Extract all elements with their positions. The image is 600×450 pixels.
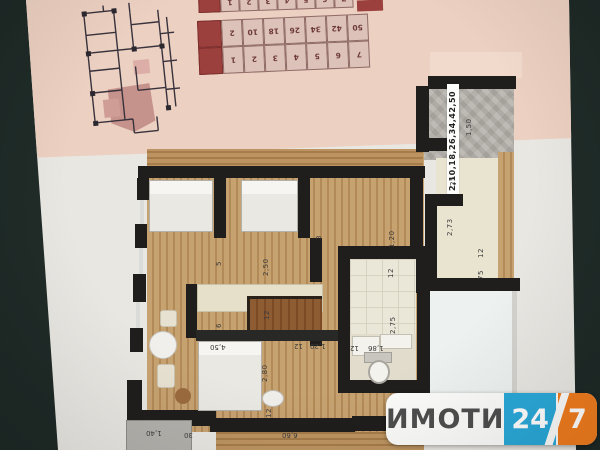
toilet-bowl (368, 360, 390, 384)
wall-segment (338, 259, 350, 383)
chair (160, 310, 177, 327)
wall-segment (338, 246, 428, 259)
floor-plan-photo: 1 2 3 4 5 6 7 2 10 18 26 34 42 50 (0, 0, 600, 450)
wall-segment (137, 178, 149, 200)
cell-value: 2 (229, 28, 235, 37)
wall-segment (138, 166, 425, 178)
dimension-label: 12 (478, 242, 485, 258)
table-corner-cell (357, 0, 383, 11)
table-cell: 10 (242, 18, 264, 46)
cell-value: 2 (246, 0, 252, 6)
dimension-label: 12 (350, 344, 359, 351)
dimension-label: 6,60 (282, 431, 298, 438)
wall-segment (428, 76, 516, 89)
window (140, 200, 144, 224)
cell-value: 50 (353, 23, 364, 32)
cell-value: 6 (335, 51, 341, 60)
dimension-label: 30 (184, 431, 193, 438)
cell-value: 34 (311, 25, 322, 34)
dimension-label: 1,86 (368, 344, 384, 351)
table-cell: 26 (284, 16, 306, 44)
round-table (149, 331, 177, 359)
wall-segment (214, 166, 226, 238)
wall-segment (425, 194, 463, 206)
dimension-label: 4,50 (210, 343, 226, 350)
bed (149, 180, 213, 232)
dimension-label: 2,73 (447, 196, 454, 236)
cell-value: 7 (356, 50, 362, 59)
table-cell: 18 (263, 17, 285, 45)
dimension-label: 1,20 (310, 342, 326, 349)
dimension-label: 12 (388, 262, 395, 278)
cell-value: 5 (314, 52, 320, 61)
wall-segment (133, 274, 146, 302)
room-number: 5 (216, 252, 223, 266)
table-cell: 42 (326, 14, 348, 42)
building-overview-inset (69, 0, 211, 148)
dimension-label: 2,75 (390, 300, 397, 334)
pink-light-patch (430, 52, 522, 78)
table-cell: 3 (264, 44, 286, 72)
dimension-label: 1,40 (146, 429, 162, 436)
cell-value: 2 (251, 54, 257, 63)
wall-segment (135, 224, 147, 248)
cell-value: 4 (293, 53, 299, 62)
dimension-label: 1,50 (466, 96, 473, 136)
dimension-label: 1,20 (389, 218, 396, 248)
table-cell: 5 (306, 42, 328, 70)
floors-table: 2 10 18 26 34 42 50 1 2 3 4 5 6 7 (197, 14, 370, 75)
table-header-cell (198, 0, 221, 13)
table-cell: 2 (239, 0, 259, 12)
imoti-logo-brand: ИМОТИ (386, 393, 504, 445)
table-cell: 6 (315, 0, 335, 9)
wall-segment (298, 166, 310, 238)
room-number: 3 (316, 228, 323, 240)
table-cell: 2 (221, 19, 243, 47)
room-number: 6 (216, 316, 223, 328)
wall-segment (425, 278, 520, 291)
cell-value: 26 (290, 26, 301, 35)
cell-value: 5 (303, 0, 309, 4)
table-cell: 1 (220, 0, 240, 12)
window (139, 248, 143, 274)
table-cell: 4 (277, 0, 297, 10)
dimension-label: 12 (266, 402, 273, 418)
cell-value: 3 (265, 0, 271, 5)
cell-value: 7 (341, 0, 347, 3)
cell-value: 4 (284, 0, 290, 4)
cell-value: 10 (248, 27, 259, 36)
wall-segment (416, 259, 428, 293)
table-cell: 1 (222, 46, 244, 74)
table-cell: 2 (243, 45, 265, 73)
table-cell: 5 (296, 0, 316, 10)
cell-value: 18 (269, 26, 280, 35)
cell-value: 42 (332, 24, 343, 33)
cell-value: 1 (227, 0, 233, 6)
table-cell: 34 (305, 15, 327, 43)
wood-strip-right (498, 152, 514, 294)
table-cell: 6 (327, 41, 349, 69)
wall-segment (210, 418, 355, 432)
cell-value: 6 (322, 0, 328, 3)
dimension-label: 12 (264, 304, 271, 320)
table-cell: 50 (347, 14, 369, 42)
dimension-label: 75 (478, 260, 485, 280)
dimension-label: 12 (294, 342, 303, 349)
table-cell: 7 (334, 0, 354, 8)
bed (241, 180, 298, 232)
table-cell: 3 (258, 0, 278, 11)
wall-segment (130, 328, 143, 352)
dimension-label: 25 (450, 162, 457, 186)
window (136, 302, 140, 328)
wall-segment (310, 238, 322, 282)
chair (157, 364, 175, 388)
cell-value: 3 (272, 54, 278, 63)
headboard (196, 330, 354, 341)
table-cell: 7 (348, 41, 370, 69)
table-header-cell (198, 47, 223, 75)
screenshot: 1 2 3 4 5 6 7 2 10 18 26 34 42 50 (0, 0, 600, 450)
dimension-label: 2,80 (262, 350, 269, 382)
washbasin (380, 334, 412, 349)
table-header-cell (197, 20, 222, 48)
cell-value: 1 (230, 55, 236, 64)
bed (198, 341, 262, 411)
dimension-label: 2,50 (263, 246, 270, 276)
nightstand (175, 388, 191, 404)
table-cell: 4 (285, 43, 307, 71)
imoti-logo: ИМОТИ 24 7 (386, 393, 597, 445)
